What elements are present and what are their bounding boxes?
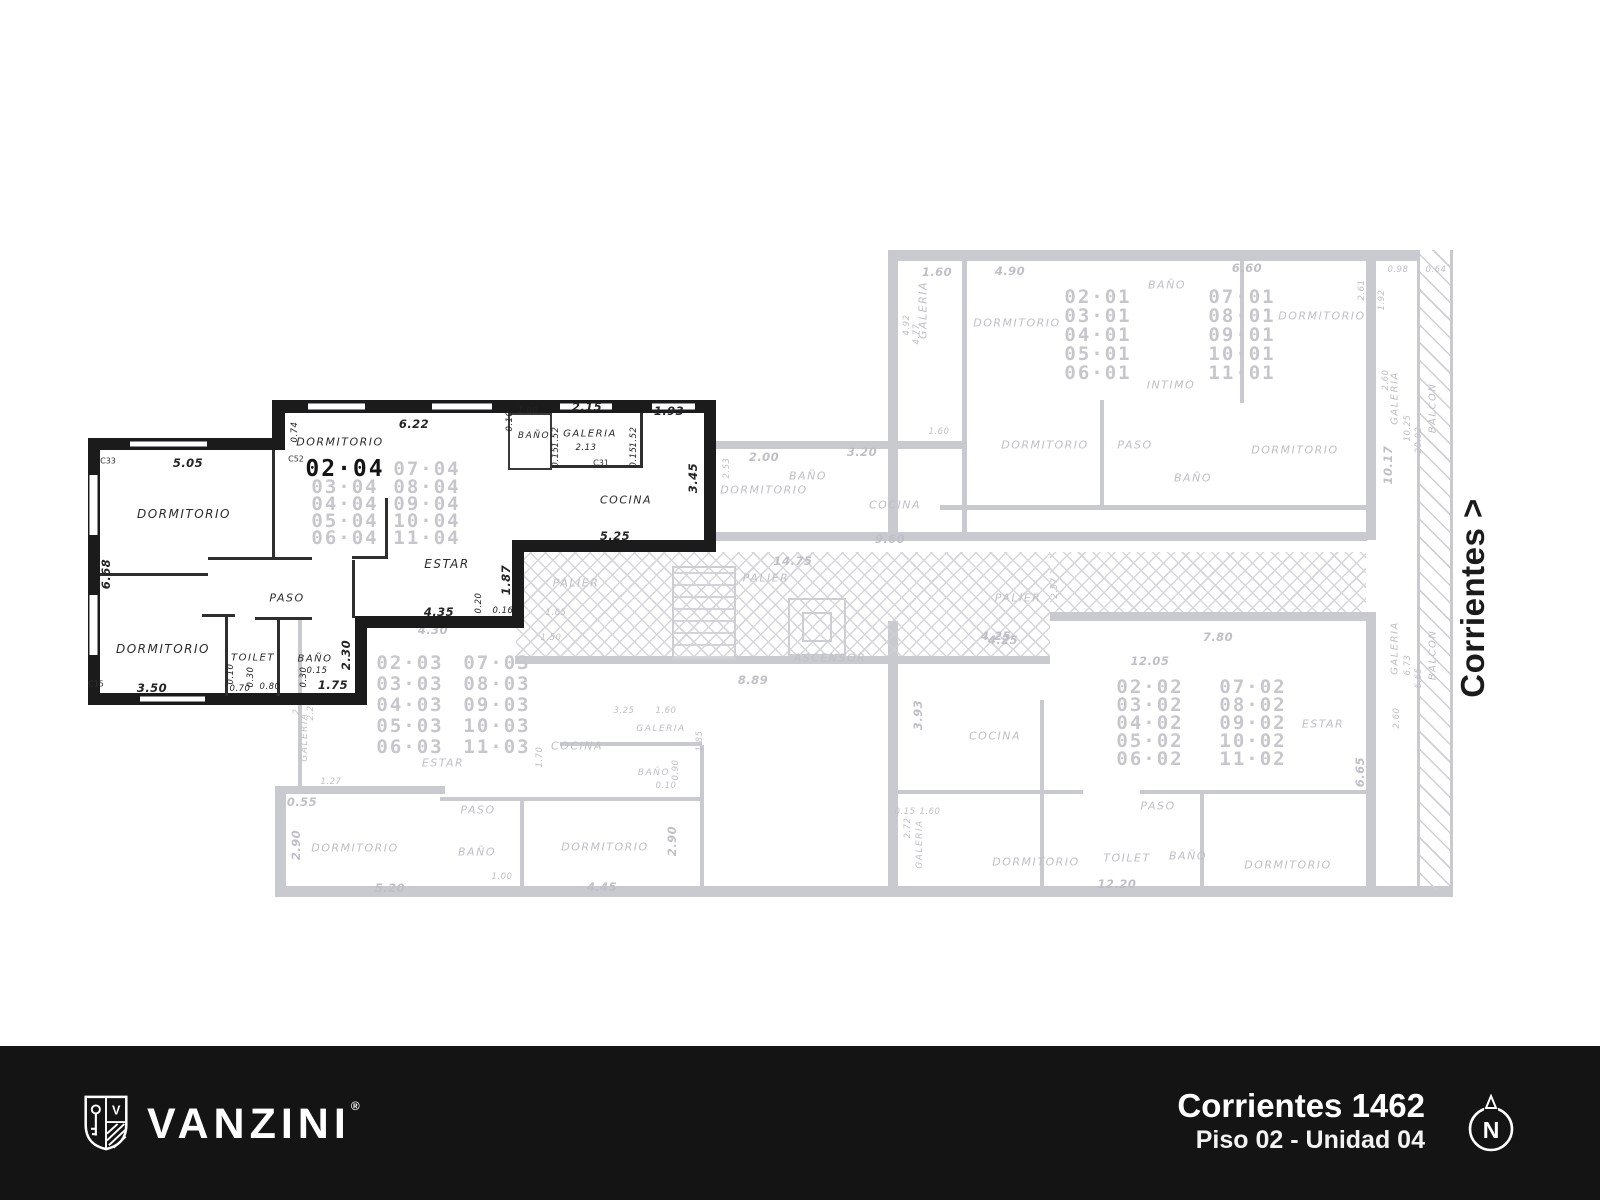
dim-label: 8.89 [738,673,768,687]
unit-code-cell: 09·03 [463,694,530,716]
dim-label: 2.13 [576,443,597,453]
dim-label: 1.52 [629,427,639,448]
wall-segment [512,540,524,628]
dim-label: 5.25 [600,529,630,543]
dim-label: 7.80 [1203,630,1233,644]
brand-name: VANZINI® [147,1099,360,1149]
dim-label: 0.55 [287,795,317,809]
dim-label: 1.70 [535,747,545,768]
faded-partition [898,790,1083,794]
brand-shield-icon: V [82,1094,130,1152]
survey-mark: C33 [100,457,116,466]
dim-label: 2.53 [722,458,732,479]
dim-label: 4.92 [902,315,912,336]
dim-label: 5.05 [173,456,203,470]
dim-label: 1.60 [656,706,677,716]
partition [255,617,312,620]
dim-label: 0.64 [1426,265,1447,275]
dim-label: 12.20 [1098,877,1137,891]
dim-label: 1.93 [654,404,684,418]
unit-code-cell: 06·04 [311,527,378,549]
room-label-ascensor: ASCENSOR [794,652,867,665]
faded-partition [520,800,524,890]
room-label-dormitorio: DORMITORIO [561,841,648,854]
room-label-dormitorio: DORMITORIO [311,842,398,855]
partition [272,450,275,557]
room-label-bano: BAÑO [458,846,496,859]
dim-label: 0.90 [671,760,681,781]
dim-label: 12.05 [1131,654,1170,668]
survey-mark: C31 [593,459,609,468]
room-label-cocina: COCINA [969,730,1021,743]
dim-label: 3.93 [911,700,925,730]
dim-label: 6.22 [399,417,429,431]
unit-code-cell: 04·03 [376,694,443,716]
palier-hatch [1050,552,1366,612]
unit-code-cell: 10·03 [463,715,530,737]
elevator-cabin-icon [802,612,832,642]
unit-code-cell: 11·01 [1208,362,1275,384]
faded-wall-segment [716,441,966,449]
room-label-palier: PALIER [995,592,1042,605]
dim-label: 4.25 [981,629,1011,643]
dim-label: 6.65 [1353,757,1367,787]
unit-subtitle: Piso 02 - Unidad 04 [1177,1124,1425,1157]
room-label-bano: BAÑO [1169,850,1207,863]
dim-label: 20.02 [1414,427,1424,454]
dim-label: 1.65 [546,608,567,618]
survey-mark: C15 [88,680,104,689]
wall-segment [704,400,716,552]
dim-label: 14.75 [774,554,813,568]
dim-label: 1.87 [499,565,513,595]
unit-code-cell: 05·03 [376,715,443,737]
dim-label: 2.60 [1381,370,1391,391]
dim-label: 3.20 [847,445,877,459]
room-label-galeria: GALERIA [563,429,617,440]
room-label-galeria: GALERIA [636,724,685,734]
unit-code-cell: 11·02 [1219,748,1286,770]
dim-label: 4.45 [587,880,617,894]
partition [352,560,355,618]
faded-wall-segment [275,786,286,897]
brand-text: VANZINI [147,1100,351,1148]
room-label-dormitorio: DORMITORIO [1001,439,1088,452]
window-marker [89,475,98,535]
dim-label: 3.45 [686,463,700,493]
room-label-dormitorio: DORMITORIO [973,317,1060,330]
room-label-dormitorio: DORMITORIO [137,507,231,521]
dim-label: 4.77 [912,324,922,345]
faded-partition [1100,400,1104,510]
partition [100,573,208,576]
unit-code-cell: 07·03 [463,652,530,674]
room-label-bano: BAÑO [789,470,827,483]
room-label-balcon: BALCON [1428,383,1439,434]
room-label-dormitorio: DORMITORIO [1278,310,1365,323]
room-label-toilet: TOILET [1103,852,1150,865]
dim-label: 1.27 [321,777,342,787]
room-label-estar: ESTAR [422,757,464,770]
room-label-dormitorio: DORMITORIO [296,436,383,449]
dim-label: 4.90 [995,264,1025,278]
faded-wall-segment [888,250,1417,261]
dim-label: 2.57 [1050,578,1060,599]
faded-wall-segment [1050,612,1376,621]
dim-label: 2.90 [289,830,303,860]
unit-code-cell: 03·03 [376,673,443,695]
footer-bar: V VANZINI® Corrientes 1462 Piso 02 - Uni… [0,1046,1600,1200]
window-marker [432,403,492,410]
dim-label: 1.50 [541,633,562,643]
partition [352,556,388,559]
faded-wall-segment [716,532,1367,541]
faded-wall-segment [275,886,1450,897]
page: { "side_label": "Corrientes >", "footer"… [0,0,1600,1200]
dim-label: 0.98 [1388,265,1409,275]
faded-partition [1140,790,1370,794]
dim-label: 6.73 [1403,655,1413,676]
room-label-cocina: COCINA [600,494,652,507]
unit-code-cell: 02·03 [376,652,443,674]
room-label-dormitorio: DORMITORIO [116,642,210,656]
dim-label: 1.85 [695,731,705,752]
room-label-paso: PASO [269,592,304,605]
dim-label: 1.60 [929,427,950,437]
dim-label: 1.00 [492,872,513,882]
faded-wall-segment [1366,618,1376,896]
dim-label: 1.52 [551,427,561,448]
unit-code-cell: 06·03 [376,736,443,758]
dim-label: 2.61 [1357,280,1367,301]
dim-label: 0.70 [230,684,251,694]
dim-label: 1.00 [518,406,539,416]
faded-wall-segment [940,505,1367,510]
room-label-bano: BAÑO [1148,279,1186,292]
dim-label: 6.65 [1414,668,1424,689]
stairs-icon [672,566,736,660]
dim-label: 2.90 [665,826,679,856]
dim-label: 2.00 [749,450,779,464]
unit-code-cell: 11·04 [393,527,460,549]
dim-label: 0.15 [629,447,639,468]
registered-mark: ® [351,1099,360,1113]
dim-label: 6.60 [1232,261,1262,275]
room-label-bano: BAÑO [638,768,670,778]
dim-label: 2.60 [1392,708,1402,729]
room-label-bano: BAÑO [297,654,332,665]
address-block: Corrientes 1462 Piso 02 - Unidad 04 [1177,1088,1425,1157]
room-label-galeria: GALERIA [1390,621,1401,675]
dim-label: 0.15 [551,447,561,468]
dim-label: 5.20 [375,881,405,895]
partition [208,557,312,560]
dim-label: 0.80 [260,682,281,692]
north-compass-icon: N [1464,1094,1518,1154]
dim-label: 10.25 [1403,415,1413,442]
survey-mark: C52 [288,455,304,464]
dim-label: 3.25 [614,706,635,716]
dim-label: 10.17 [1381,446,1395,485]
room-label-toilet: TOILET [231,653,275,664]
faded-wall-segment [888,250,898,540]
room-label-paso: PASO [460,804,495,817]
dim-label: 4.35 [424,605,454,619]
room-label-bano: BAÑO [518,431,550,441]
room-label-dormitorio: DORMITORIO [720,484,807,497]
balcony-strip-line [1450,250,1453,897]
partition [202,614,235,617]
faded-wall-segment [888,621,898,896]
dim-label: 2.30 [339,640,353,670]
room-label-palier: PALIER [743,572,790,585]
room-label-paso: PASO [1140,800,1175,813]
faded-partition [440,797,702,801]
room-label-intimo: INTIMO [1147,379,1196,392]
room-label-galeria: GALERIA [1390,371,1401,425]
room-label-cocina: COCINA [869,499,921,512]
room-label-dormitorio: DORMITORIO [992,856,1079,869]
room-label-bano: BAÑO [1174,472,1212,485]
unit-code-cell: 06·02 [1116,748,1183,770]
unit-code-cell: 06·01 [1064,362,1131,384]
dim-label: 0.15 [307,666,328,676]
dim-label: 2.15 [572,400,602,414]
faded-partition [962,253,967,540]
faded-wall-segment [515,656,1050,664]
room-label-cocina: COCINA [551,740,603,753]
svg-text:V: V [112,1103,121,1117]
unit-code-cell: 11·03 [463,736,530,758]
window-marker [130,441,207,447]
dim-label: 1.92 [1377,290,1387,311]
window-marker [140,696,205,702]
room-label-palier: PALIER [553,577,600,590]
wall-segment [355,616,367,705]
street-label: Corrientes > [1454,498,1492,698]
dim-label: 0.10 [505,411,515,432]
dim-label: 1.60 [922,265,952,279]
partition [385,498,388,558]
dim-label: 1.60 [920,807,941,817]
dim-label: 2.72 [903,818,913,839]
room-label-paso: PASO [1117,439,1152,452]
faded-partition [700,745,704,890]
dim-label: 0.20 [474,593,484,614]
partition [640,413,643,468]
dim-label: 9.60 [875,532,905,546]
dim-label: 1.75 [318,678,348,692]
room-label-balcon: BALCON [1428,630,1439,681]
room-label-dormitorio: DORMITORIO [1251,444,1338,457]
window-marker [308,403,365,410]
dim-label: 0.15 [895,807,916,817]
dim-label: 0.74 [290,422,300,443]
dim-label: 0.16 [493,606,514,616]
faded-wall-segment [1366,250,1376,540]
dim-label: 0.10 [656,781,677,791]
address-title: Corrientes 1462 [1177,1088,1425,1124]
balcony-hatch [1420,250,1450,890]
unit-code-cell: 08·03 [463,673,530,695]
floor-plan: GALERIA 4.92 4.77 1.60 4.90 6.60 0.98 0.… [0,0,1600,1200]
dim-label: 0.10 [226,664,236,685]
faded-partition [1200,792,1204,890]
room-label-estar: ESTAR [424,557,469,571]
room-label-galeria: GALERIA [915,819,925,868]
room-label-estar: ESTAR [1302,718,1344,731]
window-marker [89,595,98,655]
compass-north-letter: N [1483,1117,1500,1143]
dim-label: 3.50 [137,681,167,695]
dim-label: 6.68 [99,559,113,589]
room-label-dormitorio: DORMITORIO [1244,859,1331,872]
